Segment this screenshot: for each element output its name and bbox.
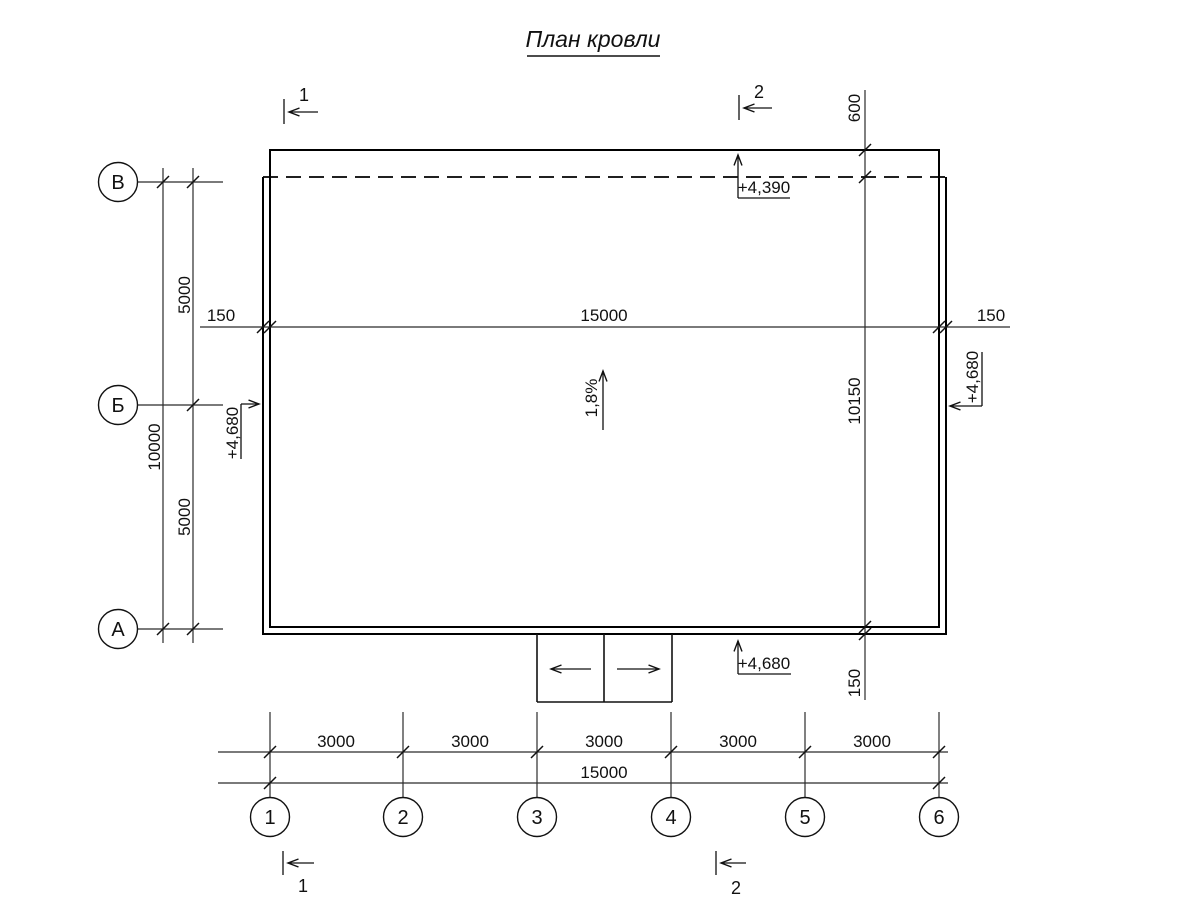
axis-label-b: Б bbox=[111, 395, 124, 417]
section-label: 2 bbox=[731, 878, 741, 898]
left-axis-grid: В Б А 10000 5000 5000 bbox=[99, 163, 224, 649]
section-mark-1-top: 1 bbox=[284, 85, 318, 124]
dim-top-overhang: 600 bbox=[845, 94, 864, 122]
dim-bay-2: 3000 bbox=[451, 732, 489, 751]
drawing-sheet: План кровли В Б А bbox=[0, 0, 1200, 900]
roof-inner-edge bbox=[270, 150, 939, 627]
dim-bay-3: 3000 bbox=[585, 732, 623, 751]
dim-bay-5: 3000 bbox=[853, 732, 891, 751]
section-label: 2 bbox=[754, 82, 764, 102]
axis-label-3: 3 bbox=[531, 807, 542, 829]
slope-indicator: 1,8% bbox=[582, 371, 603, 430]
axis-label-5: 5 bbox=[799, 807, 810, 829]
roof-outline bbox=[263, 150, 946, 634]
dim-overhang-right: 150 bbox=[977, 306, 1005, 325]
section-mark-2-top: 2 bbox=[739, 82, 772, 120]
axis-label-a: А bbox=[111, 619, 125, 641]
page-title: План кровли bbox=[526, 26, 661, 52]
elevation-mark-right: +4,680 bbox=[950, 351, 982, 406]
elevation-bottom-value: +4,680 bbox=[738, 654, 790, 673]
slope-value: 1,8% bbox=[582, 379, 601, 418]
dim-left-span-upper: 5000 bbox=[175, 276, 194, 314]
dim-right-span: 10150 bbox=[845, 377, 864, 424]
elevation-top-value: +4,390 bbox=[738, 178, 790, 197]
section-mark-1-bottom: 1 bbox=[283, 851, 314, 896]
dim-overhang-left: 150 bbox=[207, 306, 235, 325]
axis-label-6: 6 bbox=[933, 807, 944, 829]
dim-span-middle: 15000 bbox=[580, 306, 627, 325]
axis-label-2: 2 bbox=[397, 807, 408, 829]
bottom-axis-grid: 3000 3000 3000 3000 3000 15000 1 2 3 4 5… bbox=[218, 712, 959, 837]
middle-dimension-row: 150 15000 150 bbox=[200, 306, 1010, 333]
entrance-canopy bbox=[537, 634, 672, 702]
elevation-right-value: +4,680 bbox=[963, 351, 982, 403]
section-mark-2-bottom: 2 bbox=[716, 851, 746, 898]
dim-bottom-overhang: 150 bbox=[845, 669, 864, 697]
dim-bottom-total: 15000 bbox=[580, 763, 627, 782]
axis-label-1: 1 bbox=[264, 807, 275, 829]
section-label: 1 bbox=[299, 85, 309, 105]
dim-bay-4: 3000 bbox=[719, 732, 757, 751]
dim-left-total: 10000 bbox=[145, 423, 164, 470]
elevation-left-value: +4,680 bbox=[223, 407, 242, 459]
parapet-outer-edge bbox=[263, 177, 946, 634]
axis-label-v: В bbox=[111, 172, 124, 194]
elevation-mark-left: +4,680 bbox=[223, 404, 259, 459]
section-label: 1 bbox=[298, 876, 308, 896]
axis-label-4: 4 bbox=[665, 807, 676, 829]
dim-bay-1: 3000 bbox=[317, 732, 355, 751]
drawing-title: План кровли bbox=[526, 26, 661, 56]
roof-plan-drawing: План кровли В Б А bbox=[0, 0, 1200, 900]
right-dimension-column: 600 10150 150 bbox=[845, 90, 871, 700]
elevation-mark-bottom: +4,680 bbox=[738, 641, 791, 674]
dim-left-span-lower: 5000 bbox=[175, 498, 194, 536]
